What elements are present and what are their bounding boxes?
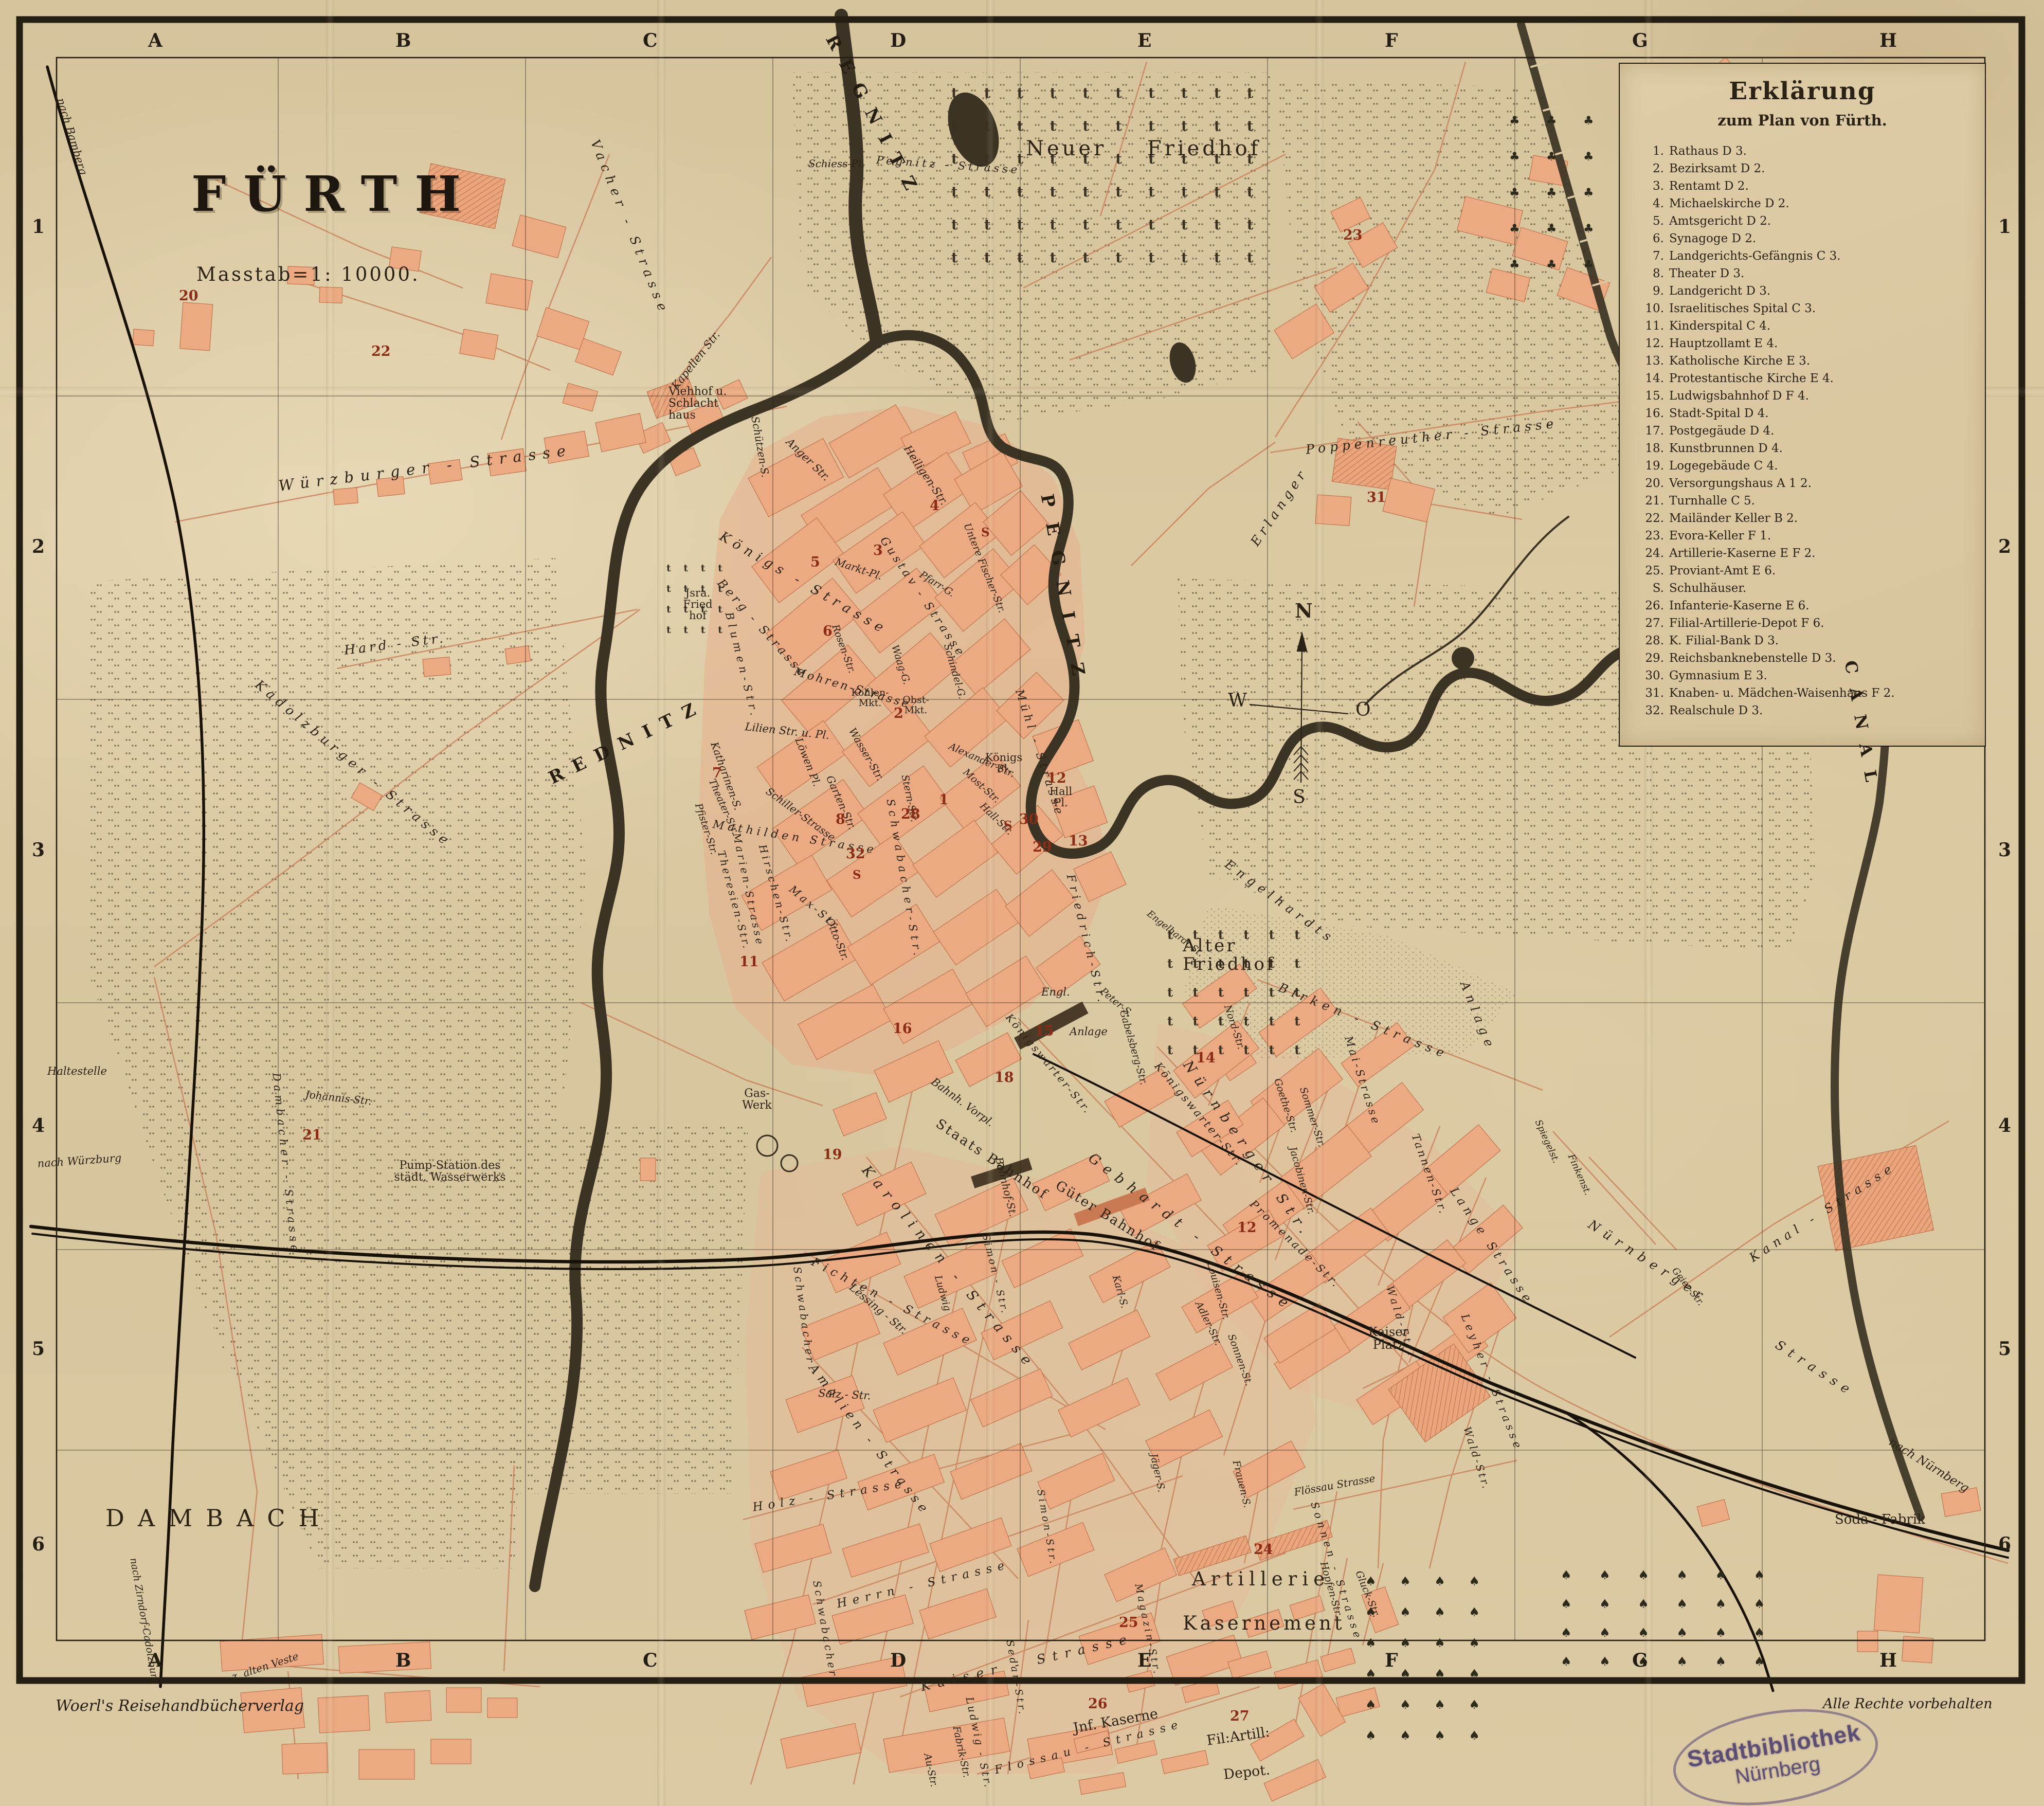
legend-item-text: Schulhäuser. <box>1664 580 1753 597</box>
legend-item: 30.Gymnasium E 3. <box>1620 667 1985 684</box>
poi-number-fil-artillerie-depot: 27 <box>1230 1708 1250 1724</box>
grid-col-label: G <box>1632 30 1648 51</box>
legend-item-number: 4. <box>1620 195 1664 212</box>
legend-item: 8.Theater D 3. <box>1620 265 1985 282</box>
grid-col-label: F <box>1385 30 1398 51</box>
legend-item: 1.Rathaus D 3. <box>1620 142 1985 160</box>
legend-item-number: 30. <box>1620 667 1664 684</box>
poi-number-versorgungshaus: 20 <box>179 288 198 304</box>
legend-item: 9.Landgericht D 3. <box>1620 282 1985 300</box>
poi-school-mark: S <box>1004 819 1012 833</box>
legend-item-text: Landgerichts-Gefängnis C 3. <box>1664 247 1848 265</box>
poi-number-hauptzollamt-a: 12 <box>1047 770 1066 786</box>
grid-row-label: 2 <box>1998 536 2011 557</box>
legend-item-number: 22. <box>1620 510 1664 527</box>
legend-item-number: 14. <box>1620 370 1664 387</box>
grid-col-label: D <box>890 1650 906 1671</box>
grid-col-label: C <box>643 1650 658 1671</box>
legend-item: 25.Proviant-Amt E 6. <box>1620 562 1985 580</box>
legend-item-number: 28. <box>1620 632 1664 649</box>
legend-item: 12.Hauptzollamt E 4. <box>1620 335 1985 352</box>
poi-number-rathaus: 1 <box>939 792 949 808</box>
poi-school-mark: S <box>981 526 990 539</box>
legend-item-number: 19. <box>1620 457 1664 475</box>
poi-number-reichsbank: 29 <box>1033 839 1052 855</box>
legend-item-number: 20. <box>1620 475 1664 492</box>
street-label-salz: Salz - Str. <box>818 1387 871 1401</box>
legend-item: 17.Postgegäude D 4. <box>1620 422 1985 440</box>
legend-item-text: Amtsgericht D 2. <box>1664 212 1778 230</box>
legend-item-number: 26. <box>1620 597 1664 615</box>
legend-item-text: Theater D 3. <box>1664 265 1751 282</box>
publisher-credit: Woerl's Reisehandbücherverlag <box>56 1697 304 1715</box>
place-label-haltestelle: Haltestelle <box>47 1065 107 1077</box>
place-label-dambach: DAMBACH <box>105 1506 333 1530</box>
map-title: FÜRTH <box>191 166 478 223</box>
legend-subtitle: zum Plan von Fürth. <box>1620 112 1985 129</box>
legend-item-text: Hauptzollamt E 4. <box>1664 335 1785 352</box>
grid-col-label: G <box>1632 1650 1648 1671</box>
place-label-pump-station: Pump-Station des städt. Wasserwerks <box>383 1160 517 1183</box>
forest-symbols: ♠ ♠ ♠ ♠ ♠ ♠ ♠ ♠ ♠ ♠ ♠ ♠ ♠ ♠ ♠ ♠ ♠ ♠ ♠ ♠ … <box>1561 1561 1766 1682</box>
legend-item-number: 32. <box>1620 702 1664 719</box>
legend-item-text: Michaelskirche D 2. <box>1664 195 1797 212</box>
legend-items: 1.Rathaus D 3. 2.Bezirksamt D 2. 3.Renta… <box>1620 142 1985 719</box>
compass-west-label: W <box>1228 691 1247 711</box>
legend-item-number: S. <box>1620 580 1664 597</box>
place-label-soda-fabrik: Soda - Fabrik <box>1835 1513 1925 1527</box>
legend-item: 16.Stadt-Spital D 4. <box>1620 405 1985 422</box>
poi-number-realschule: 32 <box>846 846 865 862</box>
compass-east-label: O <box>1355 700 1371 720</box>
legend-item-text: Reichsbanknebenstelle D 3. <box>1664 649 1843 667</box>
legend-item-number: 3. <box>1620 177 1664 195</box>
legend-item: 32.Realschule D 3. <box>1620 702 1985 719</box>
legend-item-number: 12. <box>1620 335 1664 352</box>
legend-item: 21.Turnhalle C 5. <box>1620 492 1985 510</box>
place-label-artillerie: Artillerie <box>1192 1569 1330 1590</box>
street-label-engl: Engl. <box>1041 986 1070 998</box>
legend-item-number: 13. <box>1620 352 1664 370</box>
poi-number-mailaender-keller: 22 <box>371 344 391 359</box>
legend-item-text: Stadt-Spital D 4. <box>1664 405 1776 422</box>
poi-number-waisenhaus: 31 <box>1367 490 1386 505</box>
legend-item: 6.Synagoge D 2. <box>1620 230 1985 247</box>
poi-number-filial-bank: 28 <box>901 806 920 822</box>
legend-item: 31.Knaben- u. Mädchen-Waisenhaus F 2. <box>1620 684 1985 702</box>
legend-item-text: Turnhalle C 5. <box>1664 492 1762 510</box>
poi-number-kath-kirche: 13 <box>1069 833 1088 849</box>
place-label-gas-werk: Gas- Werk <box>736 1088 777 1111</box>
poi-number-gefaengnis: 7 <box>712 765 722 781</box>
legend-item-number: 31. <box>1620 684 1664 702</box>
legend-item-text: Evora-Keller F 1. <box>1664 527 1778 545</box>
poi-number-stadt-spital: 16 <box>893 1021 912 1037</box>
legend-item-number: 18. <box>1620 440 1664 457</box>
place-label-neuer-friedhof: Neuer Friedhof <box>1026 138 1261 159</box>
legend-item: 27.Filial-Artillerie-Depot F 6. <box>1620 615 1985 632</box>
legend-item-number: 23. <box>1620 527 1664 545</box>
legend-item: 24.Artillerie-Kaserne E F 2. <box>1620 545 1985 562</box>
grid-col-label: C <box>643 30 658 51</box>
poi-number-gymnasium: 30 <box>1019 811 1039 827</box>
legend-item-text: Logegebäude C 4. <box>1664 457 1785 475</box>
poi-number-hauptzollamt-b: 12 <box>1237 1220 1257 1236</box>
legend-item: S.Schulhäuser. <box>1620 580 1985 597</box>
legend-item: 22.Mailänder Keller B 2. <box>1620 510 1985 527</box>
legend-item-text: Rentamt D 2. <box>1664 177 1756 195</box>
grid-row-label: 3 <box>32 839 45 861</box>
legend-item-number: 29. <box>1620 649 1664 667</box>
grid-row-label: 4 <box>1998 1115 2011 1136</box>
legend-item-text: Israelitisches Spital C 3. <box>1664 300 1823 317</box>
poi-school-mark: S <box>853 868 861 882</box>
legend-item: 3.Rentamt D 2. <box>1620 177 1985 195</box>
legend-item-number: 6. <box>1620 230 1664 247</box>
map-sheet: t t t t t t t t t t t t t t t t t t t t … <box>0 0 2044 1806</box>
poi-number-artillerie-kaserne: 24 <box>1254 1542 1273 1558</box>
legend-item-text: Infanterie-Kaserne E 6. <box>1664 597 1817 615</box>
grid-col-label: H <box>1879 30 1897 51</box>
poi-number-theater: 8 <box>836 811 845 827</box>
poi-number-proviant-amt: 25 <box>1119 1615 1138 1631</box>
legend-item-text: K. Filial-Bank D 3. <box>1664 632 1786 649</box>
legend-item-number: 2. <box>1620 160 1664 177</box>
poi-number-kinderspital: 11 <box>739 954 759 970</box>
legend-item: 23.Evora-Keller F 1. <box>1620 527 1985 545</box>
poi-number-synagoge: 6 <box>823 623 833 639</box>
legend-item-text: Kinderspital C 4. <box>1664 317 1778 335</box>
legend-item-text: Landgericht D 3. <box>1664 282 1778 300</box>
grid-row-label: 1 <box>1998 216 2011 238</box>
legend-item-number: 5. <box>1620 212 1664 230</box>
grid-col-label: B <box>395 30 411 51</box>
legend-item: 26.Infanterie-Kaserne E 6. <box>1620 597 1985 615</box>
cemetery-cross-symbols: t t t t t t t t t t t t t t t t t t t t … <box>951 77 1270 355</box>
grid-col-label: E <box>1137 30 1151 51</box>
poi-number-ludwigsbahnhof: 15 <box>1035 1023 1054 1039</box>
legend-item: 10.Israelitisches Spital C 3. <box>1620 300 1985 317</box>
grid-row-label: 6 <box>1998 1533 2011 1555</box>
grid-col-label: B <box>395 1650 411 1671</box>
legend-item-text: Kunstbrunnen D 4. <box>1664 440 1790 457</box>
poi-number-rentamt: 3 <box>873 543 883 558</box>
legend-item-number: 17. <box>1620 422 1664 440</box>
place-label-viehhof-schlachthaus: Viehhof u. Schlacht haus <box>668 386 746 421</box>
place-label-kasernement: Kasernement <box>1183 1614 1345 1634</box>
poi-number-amtsgericht: 5 <box>810 554 820 570</box>
legend-item-number: 27. <box>1620 615 1664 632</box>
legend-item-number: 1. <box>1620 142 1664 160</box>
grid-row-label: 5 <box>32 1338 45 1360</box>
legend-item: 15.Ludwigsbahnhof D F 4. <box>1620 387 1985 405</box>
grid-row-label: 3 <box>1998 839 2011 861</box>
legend-item: 20.Versorgungshaus A 1 2. <box>1620 475 1985 492</box>
poi-number-turnhalle: 21 <box>302 1127 322 1143</box>
street-label-engl-anlage: Anlage <box>1070 1026 1108 1037</box>
poi-number-kunstbrunnen: 18 <box>994 1070 1014 1086</box>
legend-item: 28.K. Filial-Bank D 3. <box>1620 632 1985 649</box>
poi-number-logegebaeude: 19 <box>823 1147 842 1163</box>
gas-works-tanks <box>757 1135 798 1171</box>
grid-row-label: 2 <box>32 536 45 557</box>
legend-item: 7.Landgerichts-Gefängnis C 3. <box>1620 247 1985 265</box>
legend-item-text: Katholische Kirche E 3. <box>1664 352 1817 370</box>
grid-row-label: 5 <box>1998 1338 2011 1360</box>
legend-box: Erklärung zum Plan von Fürth. 1.Rathaus … <box>1619 63 1986 747</box>
grid-col-label: D <box>890 30 906 51</box>
grid-row-label: 4 <box>32 1115 45 1136</box>
legend-item-text: Protestantische Kirche E 4. <box>1664 370 1841 387</box>
compass-south-label: S <box>1293 788 1306 807</box>
legend-title: Erklärung <box>1620 77 1985 105</box>
legend-item-text: Gymnasium E 3. <box>1664 667 1775 684</box>
legend-item-text: Realschule D 3. <box>1664 702 1770 719</box>
legend-item-text: Artillerie-Kaserne E F 2. <box>1664 545 1823 562</box>
legend-item-number: 10. <box>1620 300 1664 317</box>
rights-notice: Alle Rechte vorbehalten <box>1823 1696 1993 1712</box>
poi-number-evora-keller: 23 <box>1343 227 1363 243</box>
legend-item: 13.Katholische Kirche E 3. <box>1620 352 1985 370</box>
grid-row-label: 6 <box>32 1533 45 1555</box>
legend-item: 11.Kinderspital C 4. <box>1620 317 1985 335</box>
legend-item-text: Synagoge D 2. <box>1664 230 1763 247</box>
legend-item-number: 9. <box>1620 282 1664 300</box>
poi-number-prot-kirche: 14 <box>1196 1050 1216 1066</box>
legend-item: 29.Reichsbanknebenstelle D 3. <box>1620 649 1985 667</box>
legend-item-number: 7. <box>1620 247 1664 265</box>
place-label-israelite-cemetery: Jsra. Fried hof <box>678 587 718 621</box>
poi-number-inf-kaserne: 26 <box>1088 1696 1108 1712</box>
legend-item: 14.Protestantische Kirche E 4. <box>1620 370 1985 387</box>
grid-col-label: A <box>148 30 162 51</box>
legend-item-number: 8. <box>1620 265 1664 282</box>
legend-item-text: Mailänder Keller B 2. <box>1664 510 1805 527</box>
grid-col-label: F <box>1385 1650 1398 1671</box>
poi-number-bezirksamt: 2 <box>894 706 903 721</box>
legend-item-number: 11. <box>1620 317 1664 335</box>
grid-row-label: 1 <box>32 216 45 238</box>
street-label-schiess-pl: Schiess-Pl. <box>808 158 865 169</box>
legend-item: 19.Logegebäude C 4. <box>1620 457 1985 475</box>
legend-item: 5.Amtsgericht D 2. <box>1620 212 1985 230</box>
legend-item-number: 15. <box>1620 387 1664 405</box>
legend-item: 4.Michaelskirche D 2. <box>1620 195 1985 212</box>
legend-item-number: 21. <box>1620 492 1664 510</box>
legend-item: 18.Kunstbrunnen D 4. <box>1620 440 1985 457</box>
legend-item-text: Bezirksamt D 2. <box>1664 160 1772 177</box>
grid-col-label: H <box>1879 1650 1897 1671</box>
map-scale-label: Masstab=1: 10000. <box>196 263 420 285</box>
poi-number-michaelskirche: 4 <box>930 498 939 514</box>
legend-item-text: Versorgungshaus A 1 2. <box>1664 475 1819 492</box>
legend-item-text: Filial-Artillerie-Depot F 6. <box>1664 615 1832 632</box>
legend-item-number: 24. <box>1620 545 1664 562</box>
legend-item-text: Proviant-Amt E 6. <box>1664 562 1783 580</box>
legend-item: 2.Bezirksamt D 2. <box>1620 160 1985 177</box>
legend-item-number: 16. <box>1620 405 1664 422</box>
legend-item-text: Ludwigsbahnhof D F 4. <box>1664 387 1816 405</box>
legend-item-text: Rathaus D 3. <box>1664 142 1754 160</box>
legend-item-number: 25. <box>1620 562 1664 580</box>
legend-item-text: Postgegäude D 4. <box>1664 422 1781 440</box>
compass-north-label: N <box>1295 601 1313 621</box>
